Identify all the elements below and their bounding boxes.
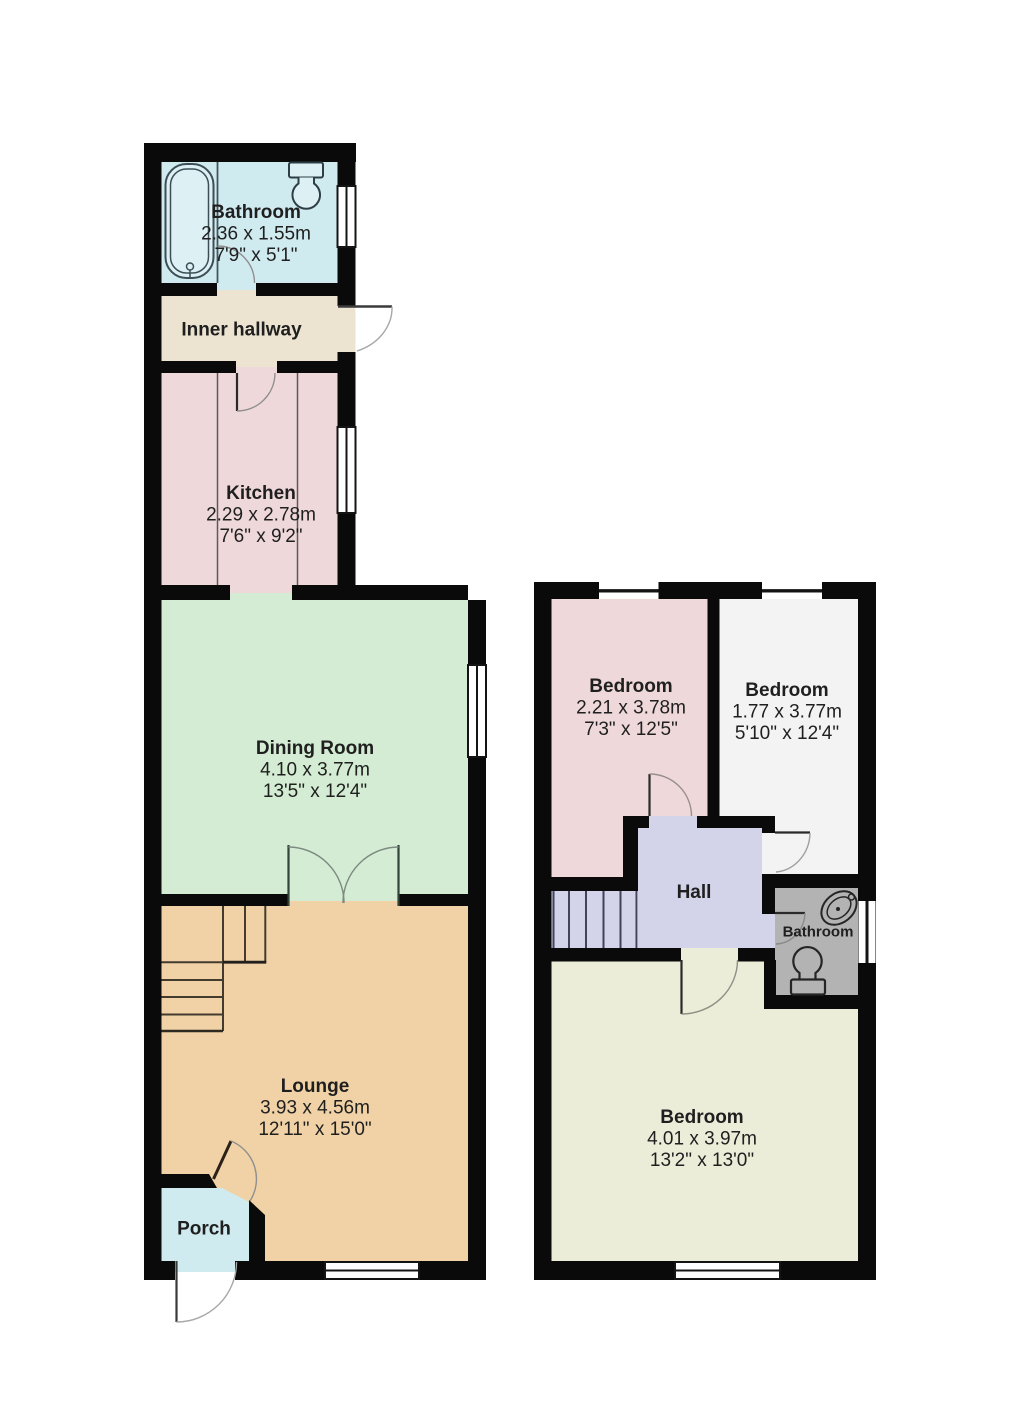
svg-text:13'5" x 12'4": 13'5" x 12'4" [263, 781, 367, 802]
svg-text:Lounge: Lounge [281, 1076, 350, 1097]
svg-text:Dining Room: Dining Room [256, 738, 374, 759]
svg-text:3.93 x 4.56m: 3.93 x 4.56m [260, 1098, 370, 1119]
svg-text:5'10" x 12'4": 5'10" x 12'4" [735, 723, 839, 744]
svg-text:Bathroom: Bathroom [783, 924, 854, 941]
svg-text:Porch: Porch [177, 1219, 231, 1240]
svg-text:2.36 x 1.55m: 2.36 x 1.55m [201, 224, 311, 245]
svg-text:1.77 x 3.77m: 1.77 x 3.77m [732, 702, 842, 723]
svg-text:4.01 x 3.97m: 4.01 x 3.97m [647, 1129, 757, 1150]
svg-text:13'2" x 13'0": 13'2" x 13'0" [650, 1150, 754, 1171]
svg-text:Kitchen: Kitchen [226, 483, 296, 504]
svg-text:Inner hallway: Inner hallway [181, 320, 302, 341]
svg-text:7'9" x 5'1": 7'9" x 5'1" [214, 245, 297, 266]
svg-text:7'3" x 12'5": 7'3" x 12'5" [584, 719, 678, 740]
svg-text:12'11" x 15'0": 12'11" x 15'0" [258, 1119, 371, 1140]
svg-text:7'6" x 9'2": 7'6" x 9'2" [219, 526, 302, 547]
svg-text:Bedroom: Bedroom [745, 680, 828, 701]
svg-text:Bathroom: Bathroom [211, 202, 301, 223]
svg-text:Hall: Hall [677, 882, 712, 903]
svg-text:Bedroom: Bedroom [660, 1107, 743, 1128]
svg-text:2.29 x 2.78m: 2.29 x 2.78m [206, 505, 316, 526]
svg-text:Bedroom: Bedroom [589, 676, 672, 697]
svg-text:2.21 x 3.78m: 2.21 x 3.78m [576, 698, 686, 719]
svg-text:4.10 x 3.77m: 4.10 x 3.77m [260, 760, 370, 781]
